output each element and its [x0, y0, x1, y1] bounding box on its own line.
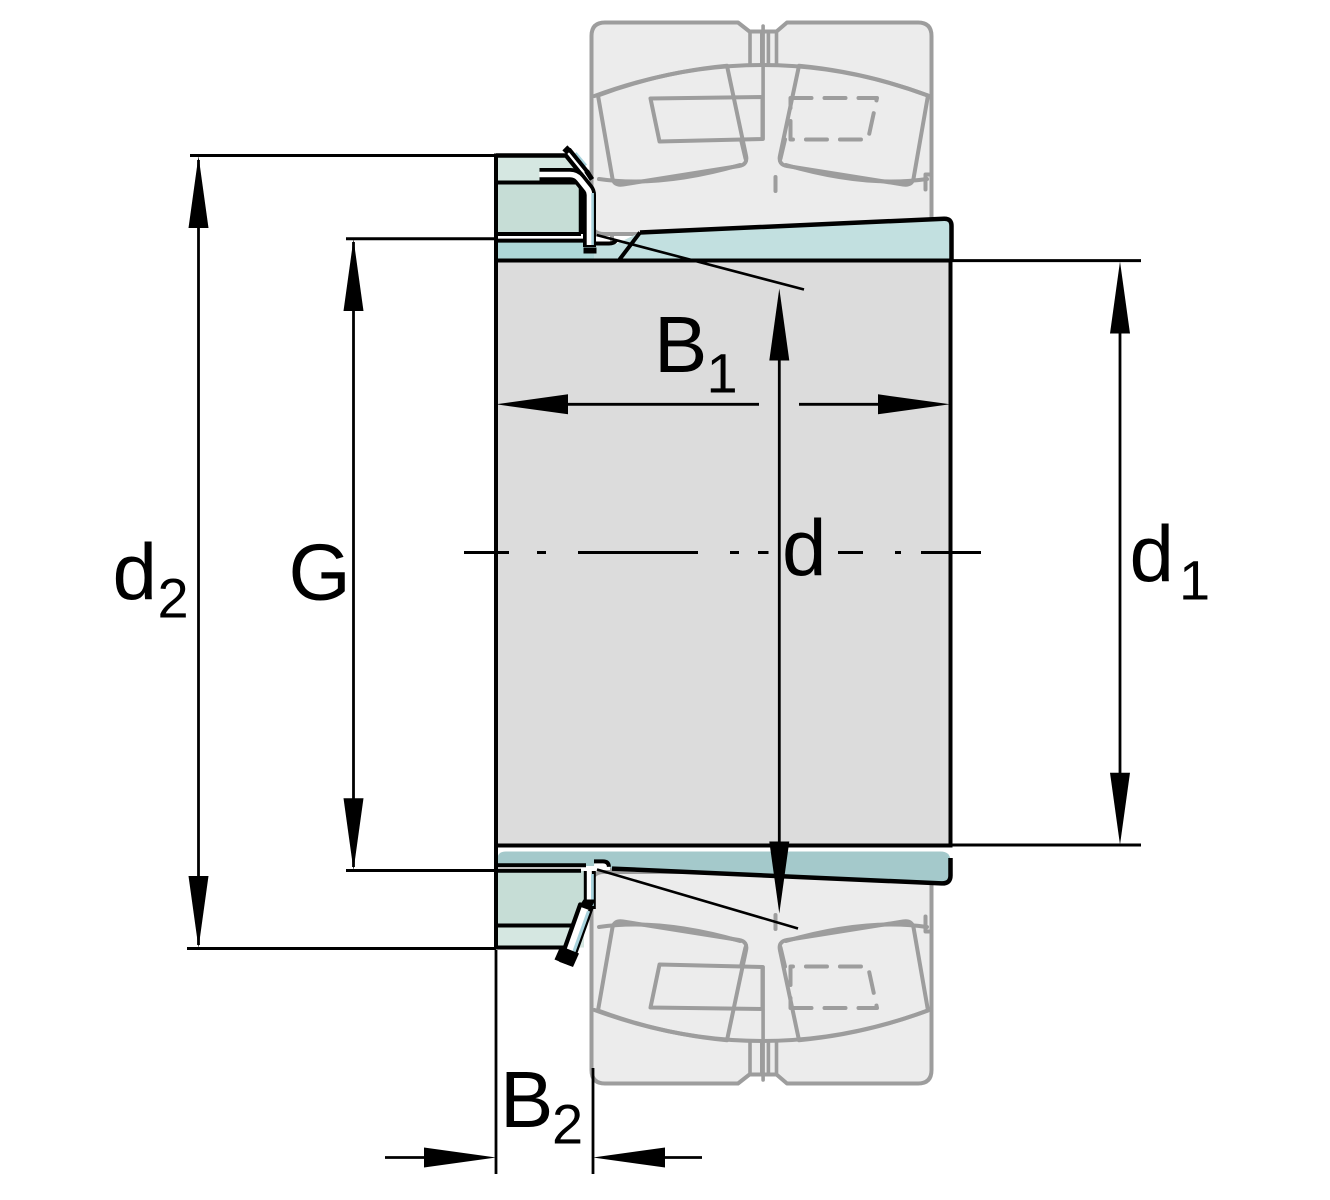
svg-text:G: G: [289, 527, 351, 616]
svg-text:d: d: [113, 527, 158, 616]
svg-text:1: 1: [1179, 548, 1210, 611]
svg-text:B: B: [500, 1055, 553, 1144]
svg-text:d: d: [1130, 509, 1175, 598]
svg-text:1: 1: [707, 342, 738, 405]
svg-text:B: B: [654, 300, 707, 389]
svg-text:2: 2: [552, 1093, 583, 1156]
svg-text:2: 2: [158, 567, 189, 630]
svg-text:d: d: [782, 504, 827, 593]
